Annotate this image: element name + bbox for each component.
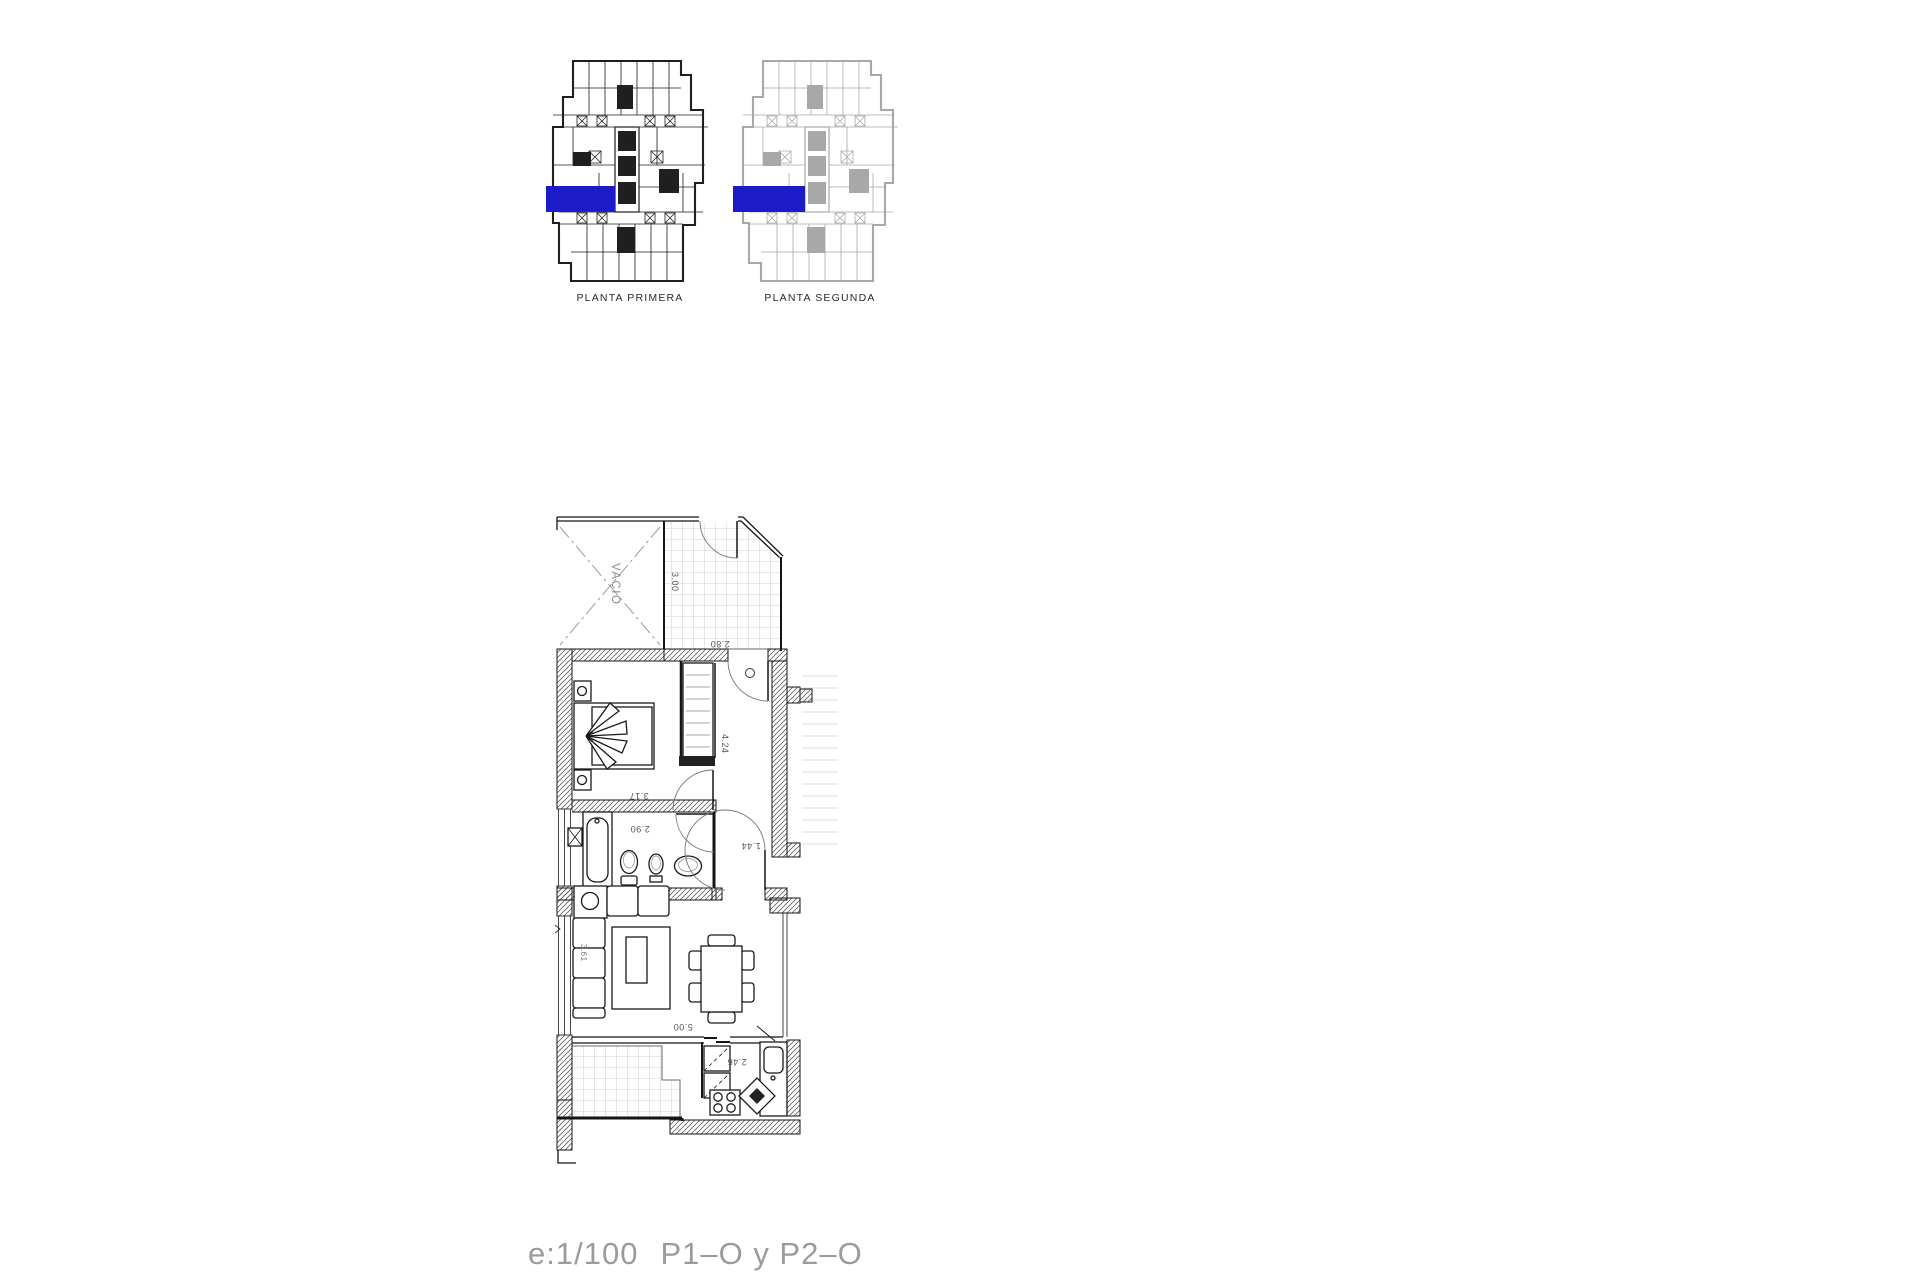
scale-note: e:1/100P1–O y P2–O <box>528 1236 863 1272</box>
terrace-top <box>664 521 781 649</box>
bathroom <box>568 812 714 888</box>
dim-kitchen-width: 2.46 <box>727 1057 747 1067</box>
bidet <box>649 854 663 882</box>
window-left-bath <box>557 809 572 886</box>
dim-hall-width: 1.44 <box>741 841 761 851</box>
dim-living-height: 3.61 <box>579 944 588 962</box>
dim-bedroom-width: 3.17 <box>629 791 649 801</box>
dim-hall-length: 4.24 <box>720 734 730 754</box>
window-left-living <box>555 916 572 1035</box>
terrace-bottom <box>572 1046 680 1118</box>
dim-bathroom-width: 2.90 <box>630 824 650 834</box>
floor-plan-segunda <box>743 61 898 281</box>
toilet <box>621 851 638 886</box>
bed <box>574 681 654 790</box>
stove <box>710 1090 740 1115</box>
scale-value: e:1/100 <box>528 1236 638 1271</box>
coffee-table <box>612 927 670 1009</box>
highlight-unit-primera <box>546 186 615 212</box>
kitchen <box>702 1042 787 1116</box>
dim-terrace-height: 3.00 <box>670 572 680 592</box>
architectural-sheet: PLANTA PRIMERA PLANTA SEGUNDA <box>0 0 1920 1280</box>
dining-table <box>689 935 754 1023</box>
apartment-floor-plan: VACIO 3.00 2.80 3.17 4.24 2.90 1.44 3.61… <box>540 505 840 1175</box>
washer-unit <box>568 828 582 846</box>
building-key-plans: PLANTA PRIMERA PLANTA SEGUNDA <box>540 45 920 310</box>
highlight-unit-segunda <box>733 186 805 212</box>
plan-label-segunda: PLANTA SEGUNDA <box>764 292 875 304</box>
entrance-door <box>728 661 768 701</box>
wardrobe <box>679 661 715 766</box>
void-label: VACIO <box>609 563 621 605</box>
dim-living-width: 5.00 <box>673 1022 693 1032</box>
plan-label-primera: PLANTA PRIMERA <box>576 292 683 304</box>
dim-terrace-width: 2.80 <box>710 639 730 649</box>
plan-codes: P1–O y P2–O <box>660 1236 862 1271</box>
window-right-living <box>783 913 787 1037</box>
floor-plan-primera <box>553 61 708 281</box>
bathtub <box>583 812 612 888</box>
